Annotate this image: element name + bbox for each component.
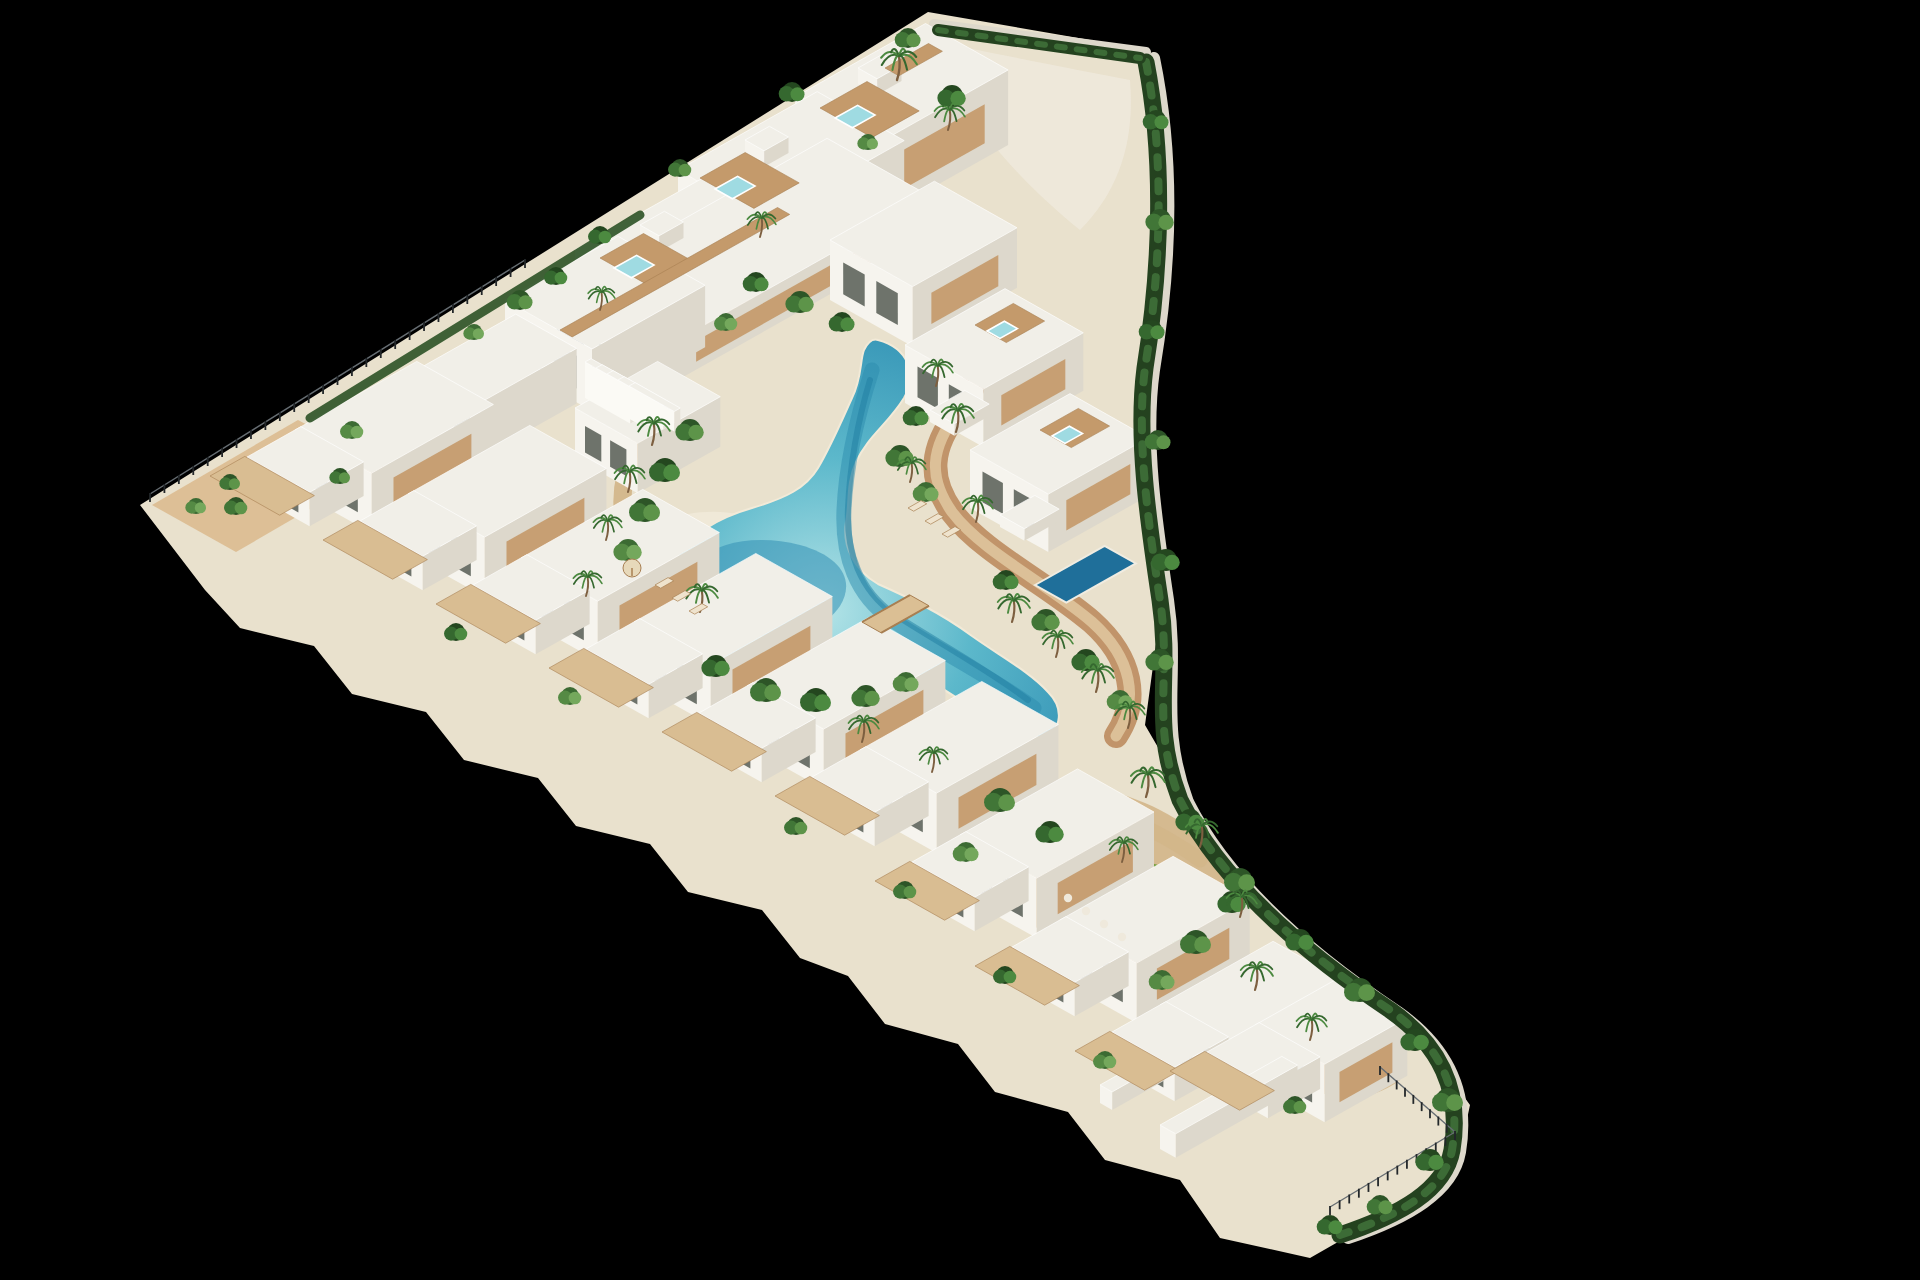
stepping-stone [1064,894,1072,902]
render-stage [0,0,1920,1280]
stepping-stone [1100,920,1108,928]
site-plan-render [0,0,1920,1280]
stepping-stone [1082,907,1090,915]
parasol [623,559,641,577]
stepping-stone [1118,933,1126,941]
